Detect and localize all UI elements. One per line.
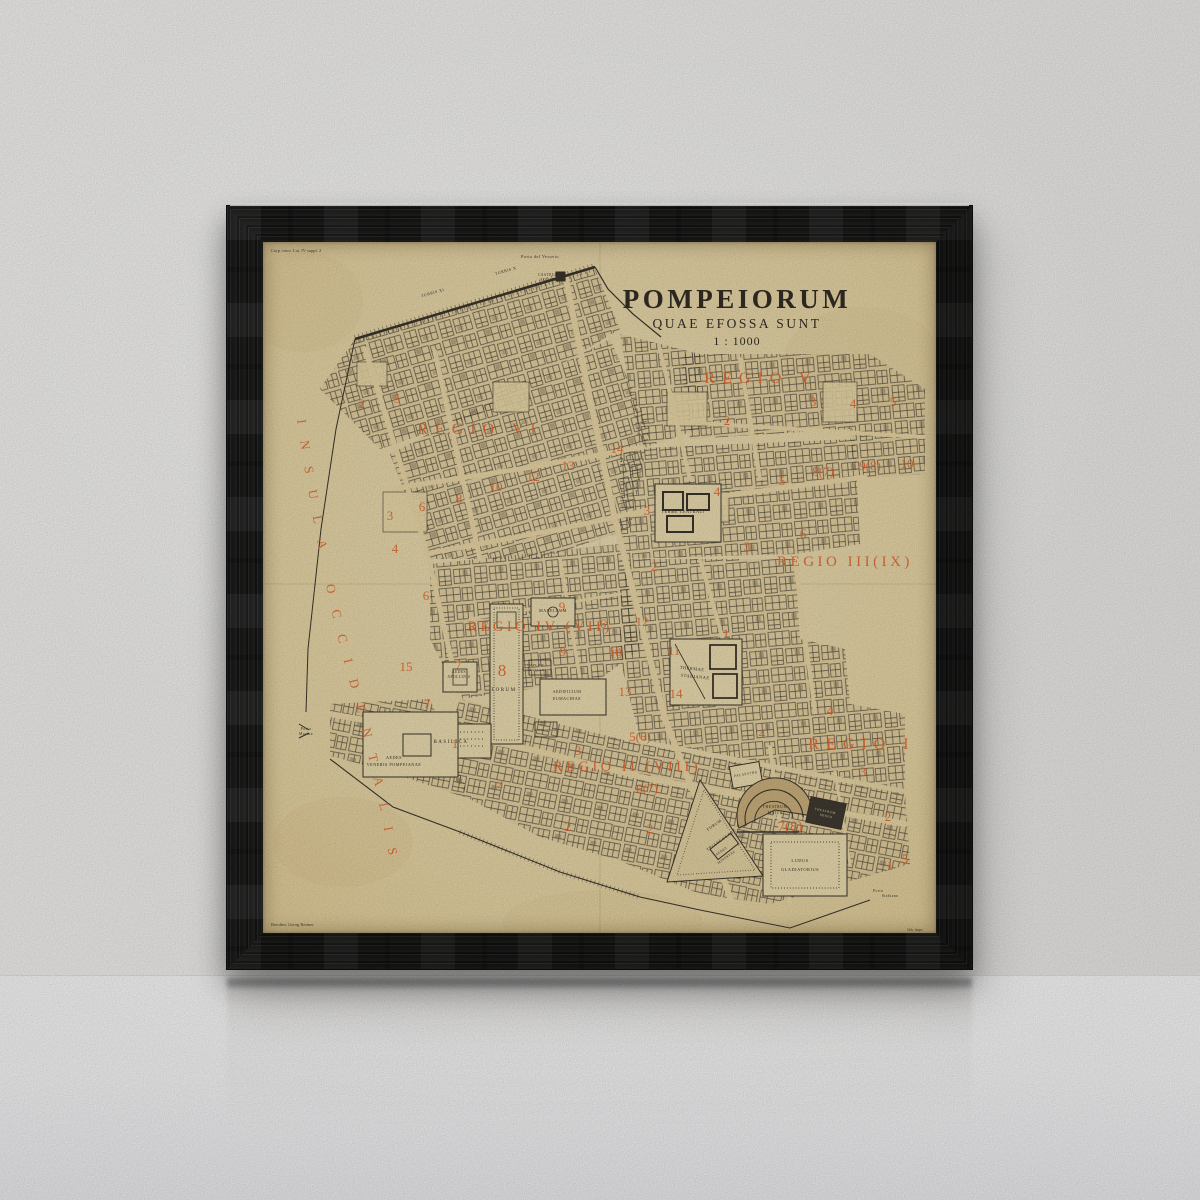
insula-number: 4 [850,396,857,411]
frame-right-bar [936,206,972,969]
building-label: AEDES [386,755,402,760]
building-label: CASTELLUM [538,273,564,277]
imprint-right: lith. impr. [907,927,923,932]
insula-number: 10 [901,456,914,471]
insula-number: 2 [724,413,731,428]
frame-reflection [227,978,972,1128]
insula-number: 3 [860,764,867,779]
building-label: Porta [873,889,883,893]
insula-number: 9 [560,644,567,659]
frame-left-bar [227,206,263,969]
insula-number: 5 [394,391,401,406]
insula-number: 8 [456,491,463,506]
insula-number: 1 [887,858,894,873]
insula-number: 6 [419,499,426,514]
imprint-left: Berolini: Georg Reimer [271,922,314,927]
building-label: AQUARUM [540,278,562,282]
insula-number: 12 [527,469,540,484]
insula-number: 2 [565,819,572,834]
insula-number: 4 [827,703,834,718]
building-label: TERME CENTRALI [662,509,705,514]
insula-number: 3 [387,508,394,523]
building-label: TEMPLUM [524,663,544,667]
insula-number: 8(7) [812,464,834,479]
insula-number: 2 [359,396,366,411]
building-label: MAIUS [768,811,783,815]
building-label: Porta del Vesuvio [521,254,559,259]
insula-number: 10 [490,479,503,494]
insula-number: 13 [562,458,575,473]
insula-number: 2 [885,809,892,824]
insula-number: 6 [600,616,607,631]
gladiator-barracks [763,834,847,896]
insula-number: 4 [392,541,399,556]
pompeii-map: POMPEIORUM QUAE EFOSSA SUNT 1 : 1000 REG… [263,242,936,933]
region-label: REGIO II (VIII) [553,759,701,775]
map-scale: 1 : 1000 [713,334,760,348]
picture-frame: POMPEIORUM QUAE EFOSSA SUNT 1 : 1000 REG… [227,206,972,969]
insula-number: 7 [424,696,431,711]
building-label: EUMACHIAE [553,696,582,701]
insula-number: 5(6) [629,729,651,744]
insula-number: 2 [647,821,654,836]
building-label: LUDUS [791,858,808,863]
insula-number: 2 [651,559,658,574]
insula-number: 6 [800,526,807,541]
corner-note: Corp. inscr. Lat. IV suppl. 2 [271,248,321,253]
map-title: POMPEIORUM [623,284,851,314]
building-label: GLADIATORIUS [781,867,819,872]
insula-number: 5 [902,851,909,866]
insula-number: 14 [611,441,625,456]
building-label: BASILICA [433,740,468,745]
insula-number: 3 [744,539,751,554]
insula-number: 4 [759,726,766,741]
insula-number: 15 [400,659,413,674]
map-paper: POMPEIORUM QUAE EFOSSA SUNT 1 : 1000 REG… [263,242,936,933]
insula-number: 3 [644,503,651,518]
insula-number: 11 [668,643,681,658]
insula-number: 2 [497,776,504,791]
insula-number: 9(8) [859,458,881,473]
insula-number: 8 [498,661,507,680]
building-label: Marina [299,732,313,736]
insula-number: 12 [636,614,649,629]
insula-number: 5 [890,394,897,409]
building-label: Porta [301,727,312,731]
region-label: REGIO V [704,370,817,387]
frame-bottom-bar [227,933,972,969]
building-label: AEDES [452,670,466,674]
map-subtitle: QUAE EFOSSA SUNT [652,316,821,331]
insula-number: 1 [723,626,730,641]
insula-number: 5 [779,473,786,488]
insula-number: 3 [810,394,817,409]
building-label: APOLLINIS [447,675,470,679]
region-label: REGIO III(IX) [777,554,913,570]
building-label: VENERIS POMPEIANAE [367,762,422,767]
insula-number: 3 [575,743,582,758]
building-label: VESPASIANI [522,668,547,672]
insula-number: 6(7) [636,781,658,796]
building-label: Stabiana [882,894,898,898]
building-label: AEDIFICIUM [553,689,582,694]
frame-top-bar [227,206,972,242]
insula-number: 6 [423,588,430,603]
building-label: MACELLUM [539,608,567,613]
insula-number: 4 [714,484,721,499]
building-label: COMITIUM [535,728,557,732]
insula-number: 13 [619,684,632,699]
building-label: FORUM [491,688,516,693]
insula-number: 7(8) [778,819,803,835]
region-label: REGIO IV (VII) [467,619,612,635]
region-label: REGIO VI [417,421,542,438]
insula-number: 10 [609,644,622,659]
insula-number: 14 [670,686,684,701]
framed-map-photo: POMPEIORUM QUAE EFOSSA SUNT 1 : 1000 REG… [0,0,1200,1200]
building-label: THEATRUM [763,805,788,809]
region-label: REGIO I [808,736,915,753]
